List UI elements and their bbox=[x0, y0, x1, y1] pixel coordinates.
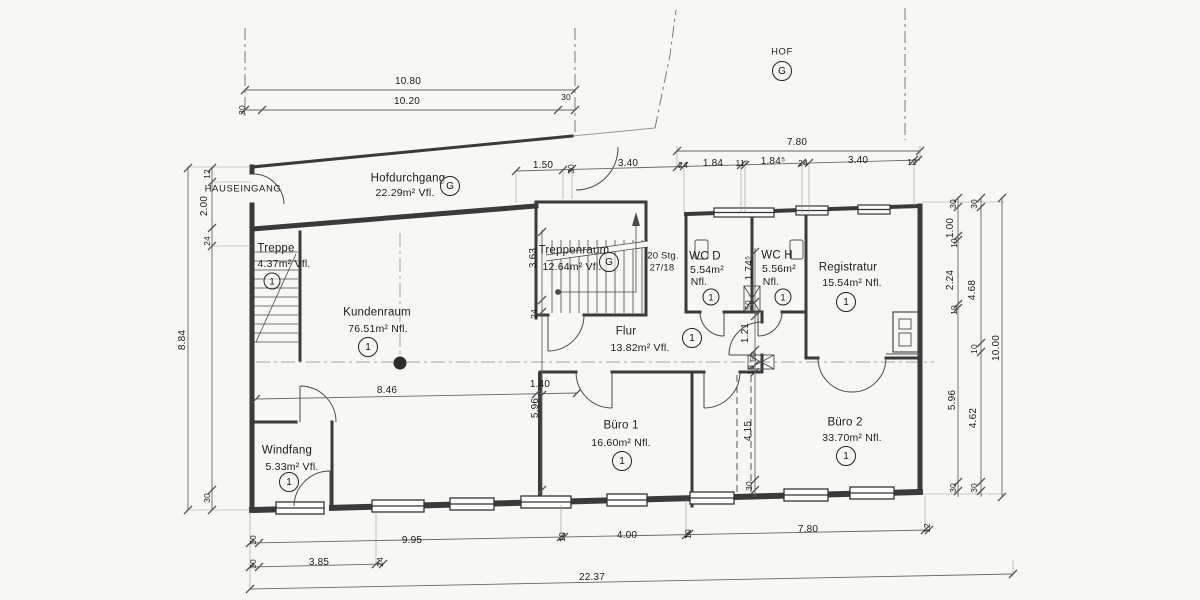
dim-r2-30b: 30 bbox=[970, 483, 979, 493]
room-buero2-name: Büro 2 bbox=[827, 417, 862, 429]
room-hofdurchgang-zone: G bbox=[440, 176, 460, 196]
room-buero1-zone: 1 bbox=[612, 451, 632, 471]
dim-left-outer: 8.84 bbox=[178, 330, 188, 350]
room-wch-unit: Nfl. bbox=[763, 277, 780, 288]
dim-hof-115: 11⁵ bbox=[736, 159, 749, 168]
room-wch-zone: 1 bbox=[775, 289, 792, 306]
door-treppenraum bbox=[548, 315, 584, 351]
room-buero2-zone: 1 bbox=[836, 446, 856, 466]
door-registratur-left bbox=[818, 358, 852, 392]
hauseingang-label: HAUSEINGANG bbox=[205, 184, 282, 194]
dim-c755-415: 4.15 bbox=[744, 421, 754, 441]
stair-note-line1: 20 Stg. bbox=[647, 251, 679, 261]
dim-c535-596: 5.96 bbox=[531, 398, 541, 418]
hof-zone-badge: G bbox=[772, 61, 792, 81]
room-buero1-name: Büro 1 bbox=[603, 420, 638, 432]
hof-edge-line bbox=[572, 128, 655, 136]
dim-left-12: 12 bbox=[203, 169, 212, 179]
dim-r2-30a: 30 bbox=[970, 199, 979, 209]
dim-c755-50a: 50 bbox=[744, 300, 753, 310]
dim-363: 3.63 bbox=[529, 248, 539, 268]
room-treppe-name: Treppe bbox=[257, 243, 294, 255]
dim-b1-12: 12 bbox=[923, 523, 932, 533]
dim-r2-468: 4.68 bbox=[968, 280, 978, 300]
dim-r1-10a: 10 bbox=[950, 238, 959, 248]
dim-r1-596: 5.96 bbox=[948, 390, 958, 410]
door-buero2 bbox=[704, 372, 740, 408]
dim-b2-30: 30 bbox=[249, 559, 258, 569]
dim-r3-total: 10.00 bbox=[992, 335, 1002, 361]
dim-r2-462: 4.62 bbox=[969, 408, 979, 428]
dim-c755-30: 30 bbox=[745, 481, 754, 491]
dim-top-30-left: 30 bbox=[238, 105, 247, 115]
dim-c755-121: 1.21 bbox=[741, 323, 751, 343]
room-registratur-area: 15.54m² Nfl. bbox=[822, 278, 882, 289]
dim-c755-174: 1.74⁵ bbox=[745, 256, 755, 281]
dim-hof-total: 7.80 bbox=[787, 138, 807, 148]
stair-note-line2: 27/18 bbox=[650, 263, 675, 273]
room-windfang-area: 5.33m² Vfl. bbox=[266, 462, 319, 473]
dim-hof-12: 12 bbox=[907, 158, 917, 167]
room-kundenraum-zone: 1 bbox=[358, 337, 378, 357]
dim-b2-385: 3.85 bbox=[309, 558, 329, 568]
dim-b1-995: 9.95 bbox=[402, 536, 422, 546]
dim-r2-10: 10 bbox=[970, 344, 979, 354]
dim-top-outer: 10.80 bbox=[395, 77, 421, 87]
dim-140: 1.40 bbox=[530, 380, 550, 390]
dim-b1-30: 30 bbox=[249, 535, 258, 545]
dim-846: 8.46 bbox=[377, 386, 397, 396]
column bbox=[394, 357, 407, 370]
dim-b1-400: 4.00 bbox=[617, 531, 637, 541]
room-wcd-name: WC D bbox=[689, 251, 720, 263]
hof-label: HOF bbox=[771, 47, 793, 57]
room-buero1-area: 16.60m² Nfl. bbox=[591, 438, 651, 449]
room-treppenraum-name: Treppenraum bbox=[539, 245, 610, 257]
dim-top-inner: 10.20 bbox=[394, 97, 420, 107]
room-treppe-zone: 1 bbox=[264, 273, 281, 290]
dim-hof-24a: 24 bbox=[678, 161, 688, 170]
property-lines bbox=[245, 8, 905, 140]
dim-r1-10b: 10 bbox=[950, 305, 959, 315]
room-wch-name: WC H bbox=[761, 250, 792, 262]
dim-top-30-right: 30 bbox=[561, 93, 571, 102]
room-flur-area: 13.82m² Vfl. bbox=[610, 343, 669, 354]
floor-plan-page: HAUSEINGANG HOF G Hofdurchgang 22.29m² V… bbox=[0, 0, 1200, 600]
dim-hof-24b: 24 bbox=[798, 159, 808, 168]
dim-hof-184b: 1.84⁵ bbox=[761, 157, 786, 167]
dim-c535-24: 24 bbox=[530, 309, 539, 319]
dim-mid-340: 3.40 bbox=[618, 159, 638, 169]
dim-c755-50b: 50 bbox=[749, 352, 758, 362]
room-wcd-zone: 1 bbox=[703, 289, 720, 306]
room-registratur-name: Registratur bbox=[819, 262, 877, 274]
room-flur-name: Flur bbox=[616, 326, 637, 338]
dim-hof-340: 3.40 bbox=[848, 156, 868, 166]
dim-mid-150: 1.50 bbox=[533, 161, 553, 171]
room-flur-zone: 1 bbox=[682, 328, 702, 348]
door-buero1 bbox=[576, 372, 612, 408]
dim-b1-780: 7.80 bbox=[798, 525, 818, 535]
room-wcd-unit: Nfl. bbox=[691, 277, 708, 288]
room-buero2-area: 33.70m² Nfl. bbox=[822, 433, 882, 444]
door-wc-d bbox=[700, 312, 724, 336]
floor-plan-drawing bbox=[0, 0, 1200, 600]
room-wcd-area: 5.54m² bbox=[690, 265, 724, 276]
room-windfang-name: Windfang bbox=[262, 445, 312, 457]
room-kundenraum-area: 76.51m² Nfl. bbox=[348, 324, 408, 335]
dim-r1-30b: 30 bbox=[949, 483, 958, 493]
dim-left-200: 2.00 bbox=[200, 196, 210, 216]
dim-r1-30a: 30 bbox=[949, 199, 958, 209]
room-treppe-area: 4.37m² Vfl. bbox=[258, 259, 311, 270]
room-registratur-zone: 1 bbox=[836, 292, 856, 312]
room-windfang-zone: 1 bbox=[279, 472, 299, 492]
dim-c755-10: 10 bbox=[747, 365, 756, 375]
dim-mid-30: 30 bbox=[567, 164, 576, 174]
room-treppenraum-area: 12.64m² Vfl. bbox=[542, 262, 601, 273]
dim-b2-24: 24 bbox=[376, 557, 385, 567]
room-kundenraum-name: Kundenraum bbox=[343, 307, 411, 319]
room-wch-area: 5.56m² bbox=[762, 264, 796, 275]
dim-hof-184a: 1.84 bbox=[703, 159, 723, 169]
dim-left-24: 24 bbox=[203, 236, 212, 246]
room-treppenraum-zone: G bbox=[599, 252, 619, 272]
dim-r1-224: 2.24 bbox=[946, 270, 956, 290]
dim-r1-100: 1.00 bbox=[946, 218, 956, 238]
room-hofdurchgang-area: 22.29m² Vfl. bbox=[375, 188, 434, 199]
dim-b3-total: 22.37 bbox=[579, 573, 605, 583]
dim-left-30: 30 bbox=[203, 493, 212, 503]
room-hofdurchgang-name: Hofdurchgang bbox=[371, 173, 446, 185]
dim-b1-10b: 10 bbox=[684, 529, 693, 539]
door-registratur-right bbox=[852, 358, 886, 392]
door-windfang-top bbox=[300, 386, 336, 422]
dim-b1-10a: 10 bbox=[558, 532, 567, 542]
